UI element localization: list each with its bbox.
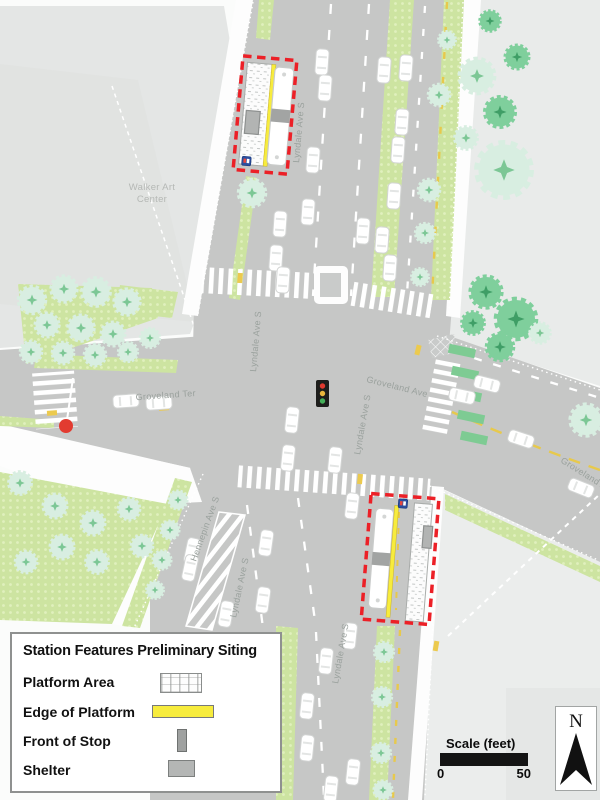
tree-icon xyxy=(119,343,138,362)
walker-art-center-label: Walker Art xyxy=(129,182,176,193)
tree-icon xyxy=(461,60,494,93)
tree-icon xyxy=(69,316,94,341)
car-icon xyxy=(315,49,330,76)
tree-icon xyxy=(419,180,440,201)
legend-label-front-of-stop: Front of Stop xyxy=(23,733,111,749)
tree-icon xyxy=(16,552,37,573)
car-icon xyxy=(395,109,410,136)
tree-icon xyxy=(83,279,110,306)
car-icon xyxy=(377,57,392,84)
tree-icon xyxy=(169,491,187,509)
tree-icon xyxy=(82,512,105,535)
map-canvas: Walker Art Center Lyndale Ave S Lyndale … xyxy=(0,0,600,800)
tree-icon xyxy=(141,329,160,348)
tree-icon xyxy=(147,582,164,599)
car-icon xyxy=(344,492,360,519)
traffic-light-icon xyxy=(316,380,329,407)
tree-icon xyxy=(372,744,391,763)
car-icon xyxy=(345,758,361,785)
tree-icon xyxy=(86,551,108,573)
legend-title: Station Features Preliminary Siting xyxy=(23,643,257,659)
scale-bar-graphic xyxy=(440,753,528,766)
edge-of-platform-swatch xyxy=(152,705,214,718)
tree-icon xyxy=(487,334,513,360)
tree-icon xyxy=(119,499,140,520)
tree-icon xyxy=(161,521,179,539)
walker-art-center-label: Center xyxy=(137,194,167,205)
tree-icon xyxy=(429,85,450,106)
scale-min: 0 xyxy=(437,766,444,781)
car-icon xyxy=(306,147,321,174)
car-icon xyxy=(299,734,315,761)
car-icon xyxy=(318,75,333,102)
tree-icon xyxy=(19,287,45,313)
tree-icon xyxy=(486,98,515,127)
legend-label-edge-of-platform: Edge of Platform xyxy=(23,704,135,720)
car-icon xyxy=(387,183,402,210)
car-icon xyxy=(323,775,339,800)
bus-stop-sign-icon xyxy=(242,156,252,166)
tree-icon xyxy=(480,11,500,31)
tree-icon xyxy=(132,536,153,557)
tree-icon xyxy=(479,145,530,196)
legend-label-platform-area: Platform Area xyxy=(23,674,114,690)
car-icon xyxy=(284,406,300,433)
car-icon xyxy=(399,55,414,82)
legend-panel: Station Features Preliminary Siting Plat… xyxy=(10,632,282,793)
tree-icon xyxy=(530,323,550,343)
car-icon xyxy=(280,444,296,471)
tree-icon xyxy=(85,345,106,366)
car-icon xyxy=(273,211,288,238)
tree-icon xyxy=(44,495,67,518)
tree-icon xyxy=(115,290,140,315)
shelter-swatch xyxy=(168,760,195,777)
north-label: N xyxy=(569,711,583,732)
tree-icon xyxy=(439,32,456,49)
tree-icon xyxy=(53,343,74,364)
median-island xyxy=(314,266,348,304)
tree-icon xyxy=(375,643,394,662)
scale-title: Scale (feet) xyxy=(446,736,538,751)
tree-icon xyxy=(506,46,529,69)
tree-icon xyxy=(52,277,77,302)
car-icon xyxy=(391,137,406,164)
tree-icon xyxy=(416,224,435,243)
bus-stop-sign-icon xyxy=(398,499,408,509)
tree-icon xyxy=(239,180,265,206)
tree-icon xyxy=(102,323,125,346)
car-icon xyxy=(299,692,315,719)
tree-icon xyxy=(412,269,429,286)
shelter xyxy=(422,526,433,549)
front-of-stop-swatch xyxy=(177,729,187,752)
scale-max: 50 xyxy=(517,766,531,781)
car-icon xyxy=(383,255,398,282)
car-icon xyxy=(375,227,390,254)
tree-icon xyxy=(373,688,392,707)
car-icon xyxy=(276,267,291,294)
tree-icon xyxy=(462,312,484,334)
tree-icon xyxy=(36,314,59,337)
car-icon xyxy=(327,446,343,473)
tree-icon xyxy=(374,781,392,799)
north-arrow-icon: N xyxy=(555,706,597,791)
tree-icon xyxy=(153,551,171,569)
tree-icon xyxy=(21,342,42,363)
car-icon xyxy=(301,199,316,226)
tree-icon xyxy=(9,472,31,494)
tree-icon xyxy=(571,405,600,435)
legend-label-shelter: Shelter xyxy=(23,762,70,778)
scale-bar: Scale (feet) 0 50 xyxy=(440,736,538,781)
platform-area-swatch xyxy=(160,673,202,693)
tree-icon xyxy=(455,127,477,149)
shelter xyxy=(244,110,260,134)
tree-icon xyxy=(51,536,74,559)
car-icon xyxy=(356,218,371,245)
tree-icon xyxy=(471,277,501,307)
